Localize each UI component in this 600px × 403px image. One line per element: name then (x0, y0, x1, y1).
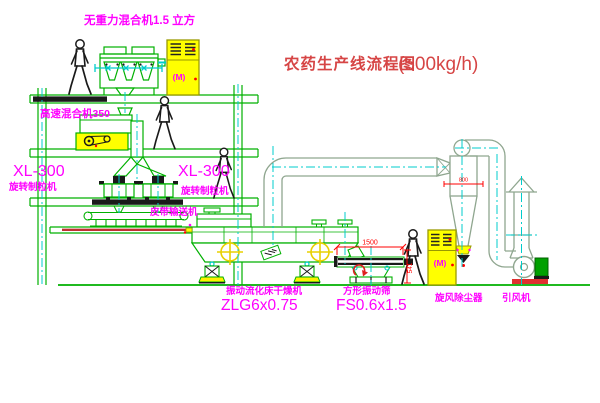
cad-flow-diagram: (M) (M) 农药生产线流程图 (500kg/h) 无重力混合机1.5 (0, 0, 600, 403)
slab-hatch-top (33, 96, 107, 101)
fan-base (512, 279, 548, 284)
label-granulator-left-model: XL-300 (13, 163, 65, 180)
dryer-vibration-feet (199, 262, 320, 283)
worker-figure-4 (402, 230, 424, 284)
label-screen-model: FS0.6x1.5 (336, 297, 407, 314)
label-high-speed-mixer: 高速混合机350 (40, 107, 110, 120)
control-cabinet-lower: (M) (428, 230, 456, 285)
worker-figure-2 (154, 97, 175, 149)
label-dryer-model: ZLG6x0.75 (221, 297, 298, 314)
label-granulator-left-name: 旋转制粒机 (8, 181, 57, 193)
control-cabinet-upper: (M) (167, 40, 199, 95)
label-gravity-free-mixer: 无重力混合机1.5 立方 (83, 13, 195, 27)
cabinet-motor-label: (M) (173, 72, 186, 82)
fan-motor (535, 258, 548, 276)
drawing-surface: (M) (M) 农药生产线流程图 (500kg/h) 无重力混合机1.5 (0, 0, 600, 403)
dim-text-800: 800 (459, 178, 468, 184)
worker-figure-1 (69, 40, 91, 94)
dim-text-1500: 1500 (362, 240, 378, 247)
label-granulator-center-model: XL-300 (178, 163, 230, 180)
title-capacity: (500kg/h) (398, 54, 478, 75)
label-granulator-center-name: 旋转制粒机 (180, 185, 229, 197)
label-fan: 引风机 (502, 292, 531, 304)
gravity-free-mixer (100, 47, 165, 95)
label-cyclone: 旋风除尘器 (434, 292, 483, 304)
exhaust-duct (264, 158, 450, 227)
label-dryer-name: 振动流化床干燥机 (226, 285, 303, 297)
cabinet-motor-label: (M) (434, 258, 447, 268)
feed-inlet-mark (186, 228, 192, 232)
slab-hatch-granulator (92, 199, 183, 204)
y-splitter-pipe (114, 157, 166, 176)
page-title: 农药生产线流程图 (283, 54, 416, 73)
label-screen-name: 方形振动筛 (343, 285, 391, 297)
snap-dot (95, 145, 97, 147)
dim-text-541: 541 (407, 262, 414, 273)
fluid-bed-dryer (184, 208, 358, 283)
induced-draft-fan (512, 257, 549, 285)
label-belt-conveyor: 皮带输送机 (149, 206, 198, 218)
